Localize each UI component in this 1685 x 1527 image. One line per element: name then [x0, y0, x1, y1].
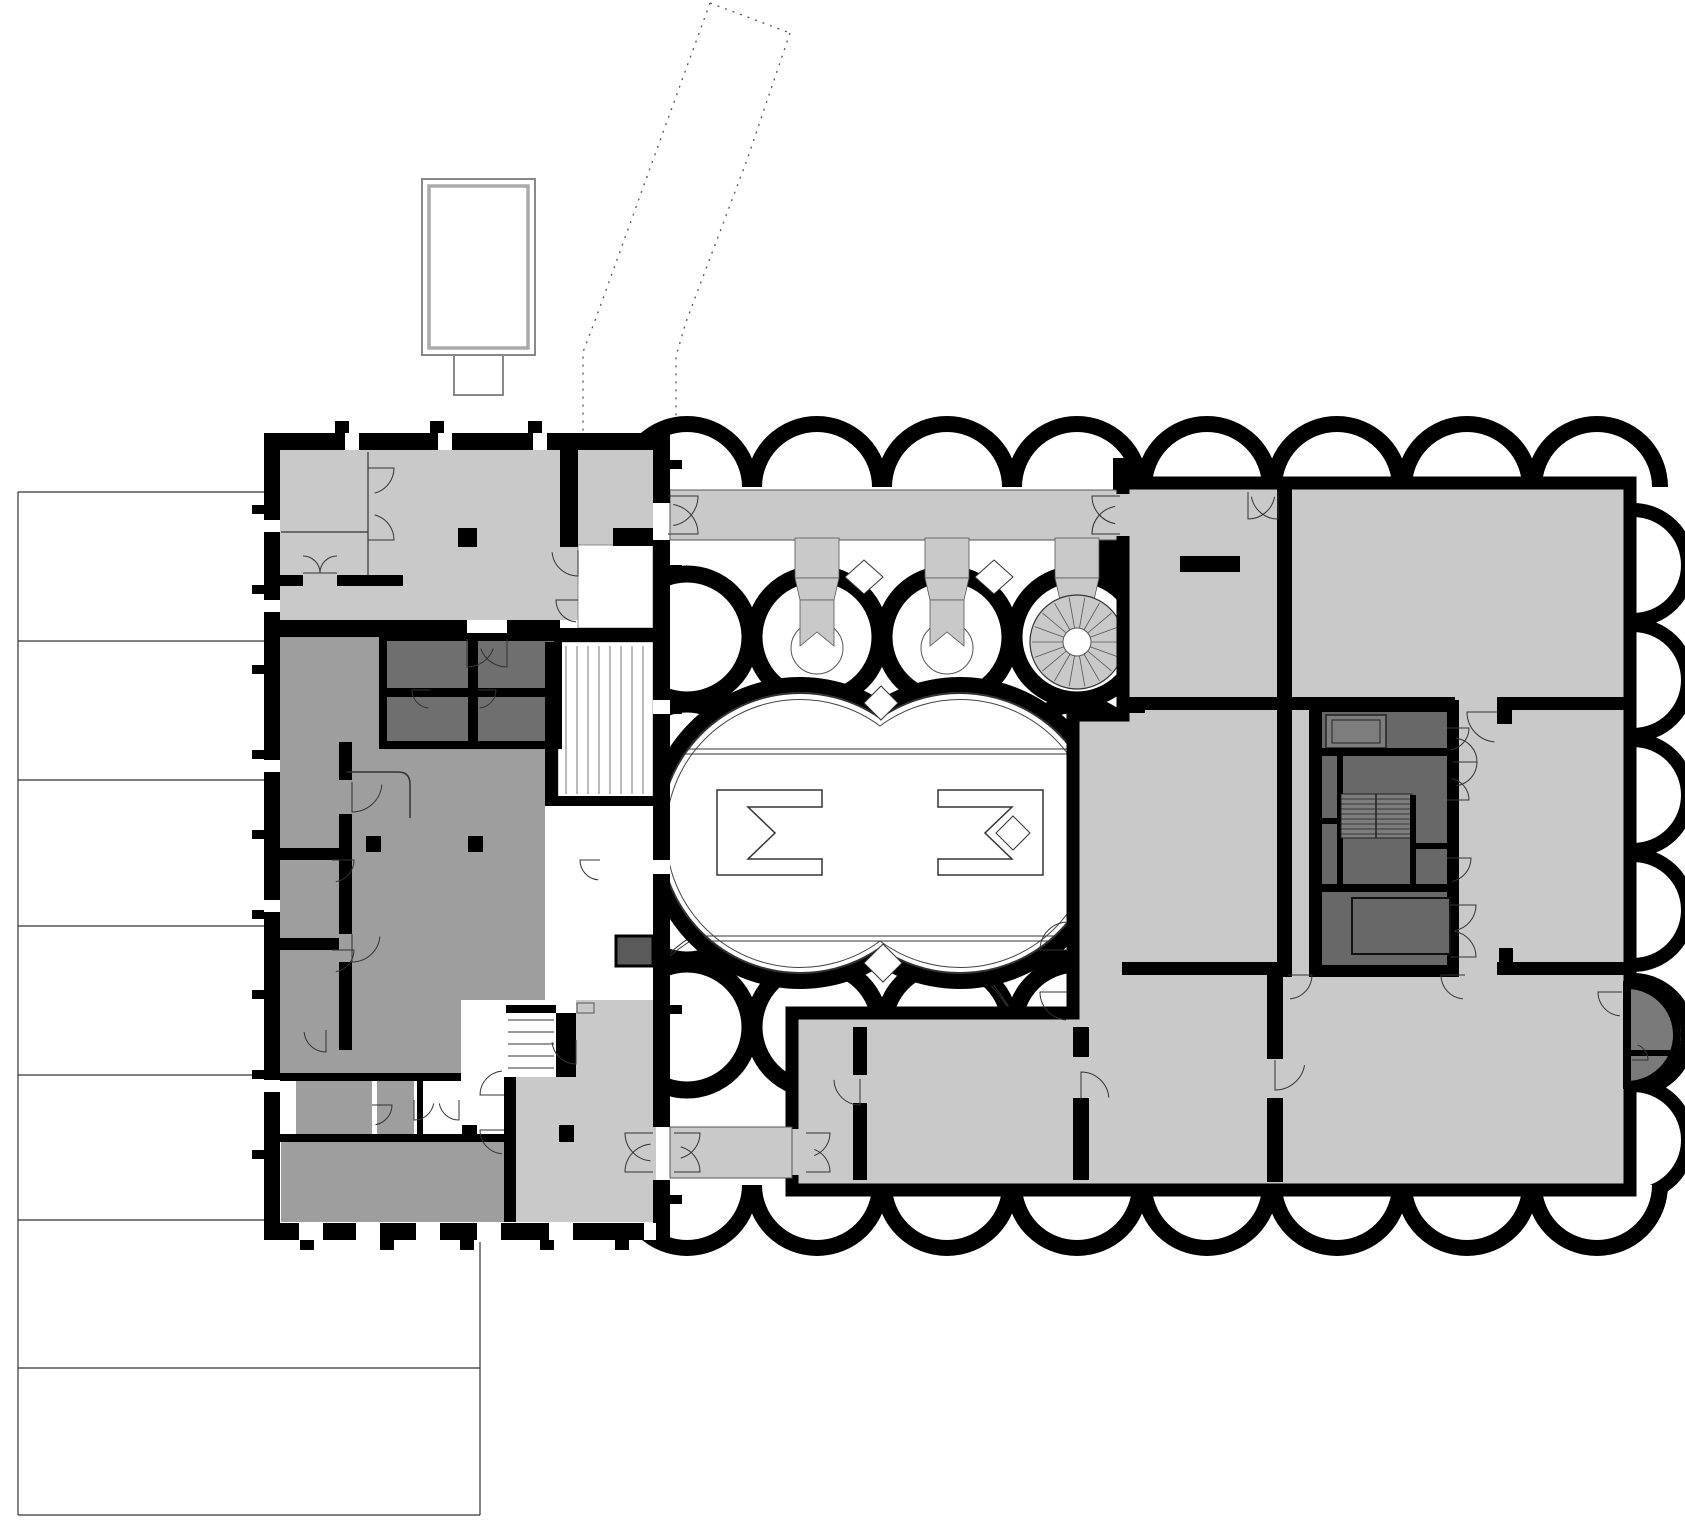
floor-plan-drawing [0, 0, 1685, 1527]
link-corridor-north [670, 490, 1123, 540]
quatrefoil-hall [644, 677, 1116, 989]
left-building [252, 421, 698, 1250]
core-elevator [1352, 898, 1450, 954]
billboard-base [454, 355, 503, 395]
floor-plan-page [0, 0, 1685, 1527]
facade-ticks [335, 421, 542, 433]
site-boundary-dashed [583, 3, 790, 486]
spiral-stair-hub [1063, 628, 1091, 656]
facade-ticks [300, 1240, 629, 1250]
wall-south [264, 1223, 670, 1240]
billboard-outer [422, 179, 535, 355]
link-corridor-south [670, 1127, 792, 1178]
scallop-row-east [1633, 510, 1685, 1195]
corridor-south [670, 1127, 792, 1178]
billboard-inner [429, 186, 528, 348]
wall-east [653, 433, 670, 503]
facade-ticks [252, 505, 264, 1159]
wall-west [264, 433, 280, 1240]
wall-north [264, 433, 670, 450]
room-fixture-bar [1180, 556, 1240, 572]
site-billboard [422, 179, 535, 395]
